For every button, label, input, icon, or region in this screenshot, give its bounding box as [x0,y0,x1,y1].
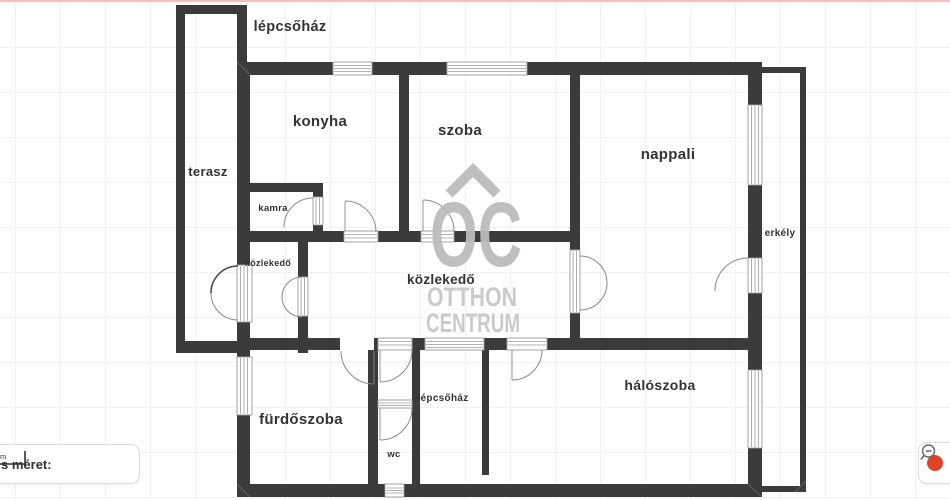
room-label-kamra: kamra [258,203,288,214]
door-sill-kamra [313,197,323,225]
window-lepcsohaz [425,338,484,350]
watermark-logo: OC OTTHON CENTRUM [426,170,522,338]
scale-unit: 1m [0,452,6,461]
door-sill-erkely [748,258,762,293]
door-sill-wc [378,400,412,408]
floorplan-svg[interactable]: OC OTTHON CENTRUM lépcsőház konyha szoba… [0,0,950,500]
window-konyha [333,62,372,75]
room-label-szoba: szoba [438,122,482,139]
room-label-kozlekedo-entry: közlekedő [245,258,291,268]
room-label-wc: wc [386,449,400,460]
watermark-oc: OC [430,184,522,286]
zoom-controls [918,442,950,484]
window-furdoszoba [237,357,252,415]
room-label-nappali: nappali [641,146,696,163]
window-wc [385,484,404,497]
watermark-centrum: CENTRUM [426,308,520,338]
door-sill-wc-lobby [378,338,412,350]
door-sill-terasz-entry [237,265,252,322]
scale-bar: 1m [0,445,29,467]
room-label-furdoszoba: fürdőszoba [259,411,343,428]
window-nappali [748,105,762,185]
zoom-out-button[interactable] [919,443,939,463]
magnifier-minus-icon [921,445,935,460]
door-sill-entry [298,277,308,316]
room-label-lepcsohaz-top: lépcsőház [254,19,327,35]
window-haloszoba [748,370,762,448]
room-label-haloszoba: hálószoba [624,377,695,393]
room-label-lepcsohaz-bottom: lépcsőház [417,393,468,404]
room-label-kozlekedo-hall: közlekedő [407,272,475,287]
scale-box: s méret: 1m [0,444,140,484]
window-szoba [447,62,527,75]
door-sill-konyha [344,231,378,242]
room-label-erkely: erkély [765,228,796,239]
room-label-terasz: terasz [188,164,228,179]
door-sill-haloszoba [507,338,547,350]
door-sill-nappali [570,250,580,313]
room-label-konyha: konyha [293,113,348,130]
floorplan-canvas[interactable]: OC OTTHON CENTRUM lépcsőház konyha szoba… [0,0,950,500]
